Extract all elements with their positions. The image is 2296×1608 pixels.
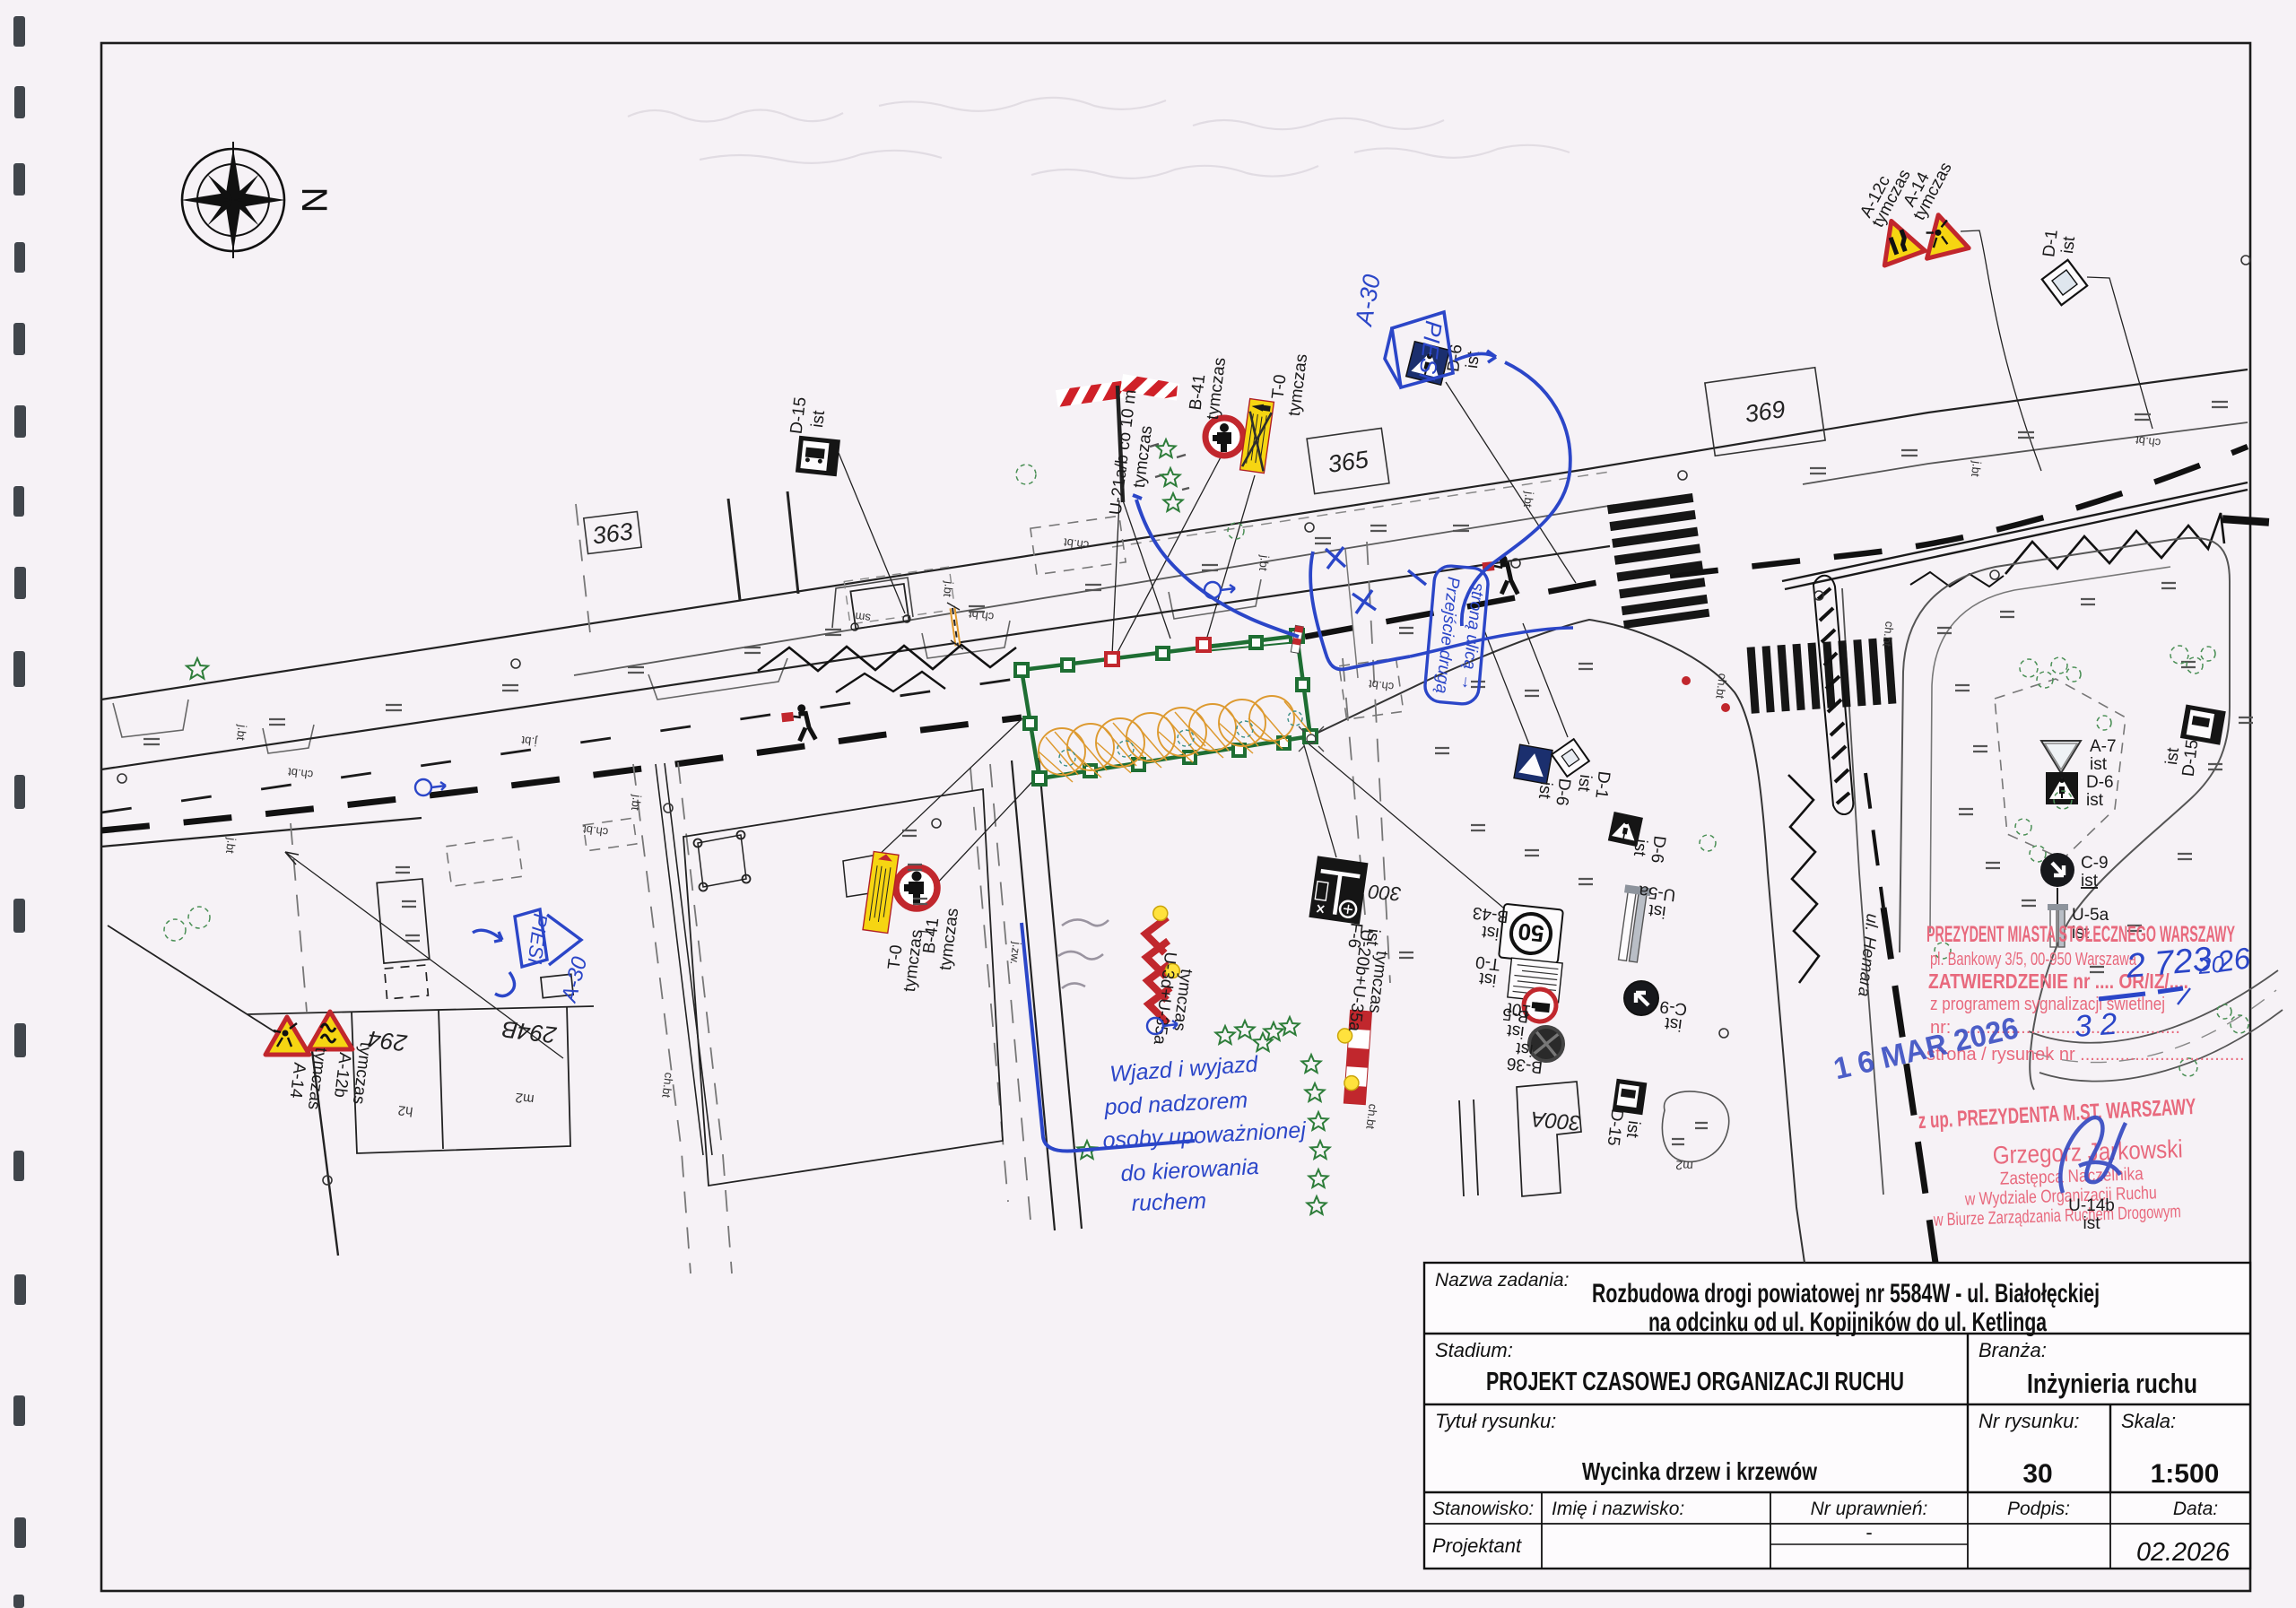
- svg-text:ist: ist: [1664, 1013, 1683, 1034]
- svg-text:Stadium:: Stadium:: [1435, 1339, 1513, 1361]
- svg-text:ist: ist: [1622, 1119, 1643, 1139]
- svg-text:3 2: 3 2: [2074, 1007, 2118, 1044]
- svg-text:m2: m2: [1674, 1158, 1693, 1174]
- svg-text:Podpis:: Podpis:: [2007, 1499, 2070, 1519]
- svg-text:na odcinku od ul. Kopijników d: na odcinku od ul. Kopijników do ul. Ketl…: [1648, 1308, 2047, 1337]
- svg-text:ist: ist: [1481, 922, 1500, 943]
- svg-text:A-7: A-7: [2090, 737, 2117, 756]
- svg-text:Tytuł rysunku:: Tytuł rysunku:: [1435, 1410, 1556, 1432]
- svg-text:j.bt: j.bt: [223, 836, 239, 854]
- svg-text:ist: ist: [2081, 872, 2099, 891]
- svg-text:F-6: F-6: [1344, 922, 1365, 950]
- svg-text:-: -: [1865, 1521, 1872, 1543]
- svg-text:369: 369: [1744, 395, 1787, 428]
- svg-text:N: N: [294, 187, 334, 213]
- svg-text:D-1: D-1: [1591, 770, 1613, 800]
- svg-text:Wycinka drzew i krzewów: Wycinka drzew i krzewów: [1582, 1457, 1817, 1485]
- svg-text:365: 365: [1326, 446, 1371, 478]
- svg-text:sm: sm: [855, 610, 872, 625]
- svg-text:PROJEKT CZASOWEJ ORGANIZACJI R: PROJEKT CZASOWEJ ORGANIZACJI RUCHU: [1486, 1368, 1904, 1396]
- svg-text:Branża:: Branża:: [1979, 1339, 2047, 1361]
- svg-text:Rozbudowa drogi powiatowej nr: Rozbudowa drogi powiatowej nr 5584W - ul…: [1592, 1279, 2100, 1308]
- svg-text:ist: ist: [1506, 1021, 1526, 1041]
- svg-text:Data:: Data:: [2173, 1499, 2218, 1519]
- svg-text:Stanowisko:: Stanowisko:: [1432, 1499, 1534, 1519]
- svg-text:26: 26: [2214, 941, 2253, 978]
- svg-text:Imię i nazwisko:: Imię i nazwisko:: [1552, 1499, 1684, 1519]
- svg-text:D-6: D-6: [1552, 778, 1574, 807]
- svg-text:ist: ist: [2086, 791, 2104, 810]
- svg-text:Nazwa zadania:: Nazwa zadania:: [1435, 1270, 1569, 1291]
- svg-text:Projektant: Projektant: [1432, 1534, 1522, 1557]
- svg-text:50: 50: [1517, 918, 1545, 948]
- svg-text:ist: ist: [1535, 780, 1555, 800]
- svg-text:1:500: 1:500: [2151, 1459, 2220, 1489]
- svg-text:ist: ist: [2162, 746, 2183, 766]
- svg-text:D-6: D-6: [1647, 835, 1669, 865]
- svg-text:D-1: D-1: [2039, 229, 2062, 258]
- svg-text:30: 30: [2022, 1459, 2052, 1489]
- svg-text:363: 363: [591, 517, 634, 549]
- svg-text:pl. Bankowy 3/5, 00-950 Warsza: pl. Bankowy 3/5, 00-950 Warszawa: [1930, 950, 2137, 969]
- svg-text:ist: ist: [1478, 969, 1498, 989]
- svg-text:ist: ist: [1515, 1039, 1535, 1059]
- svg-text:C-9: C-9: [2081, 854, 2109, 873]
- svg-text:Inżynieria ruchu: Inżynieria ruchu: [2027, 1368, 2197, 1399]
- svg-text:h2: h2: [397, 1102, 414, 1119]
- svg-text:j.zw.: j.zw.: [1008, 940, 1024, 965]
- svg-text:ist: ist: [2058, 235, 2079, 255]
- svg-text:j.bt: j.bt: [629, 793, 644, 811]
- svg-text:D-6: D-6: [2086, 773, 2114, 792]
- svg-text:Skala:: Skala:: [2121, 1410, 2176, 1432]
- svg-text:U-14b: U-14b: [2068, 1196, 2115, 1215]
- svg-text:ist: ist: [1362, 927, 1383, 947]
- svg-text:ist: ist: [2090, 755, 2108, 774]
- svg-text:j.bt: j.bt: [941, 579, 956, 597]
- svg-text:ist: ist: [808, 409, 829, 429]
- svg-text:300: 300: [1367, 880, 1403, 905]
- svg-text:j.bt: j.bt: [1257, 553, 1272, 571]
- svg-text:j.bt: j.bt: [1969, 459, 1984, 477]
- svg-text:ist: ist: [1574, 773, 1595, 793]
- svg-text:j.bt: j.bt: [1521, 490, 1536, 508]
- svg-text:ist: ist: [1648, 900, 1667, 921]
- svg-text:300A: 300A: [1530, 1107, 1582, 1135]
- svg-text:Nr rysunku:: Nr rysunku:: [1979, 1410, 2079, 1432]
- svg-text:02.2026: 02.2026: [2136, 1538, 2231, 1567]
- svg-text:ist: ist: [1630, 838, 1650, 857]
- svg-text:j.bt: j.bt: [234, 723, 249, 741]
- svg-text:10t: 10t: [1506, 998, 1532, 1020]
- svg-text:ist: ist: [2083, 1214, 2101, 1233]
- svg-text:j.bt: j.bt: [520, 734, 538, 749]
- svg-text:m2: m2: [515, 1090, 535, 1107]
- svg-text:ruchem: ruchem: [1131, 1188, 1206, 1216]
- svg-text:Nr uprawnień:: Nr uprawnień:: [1811, 1499, 1928, 1519]
